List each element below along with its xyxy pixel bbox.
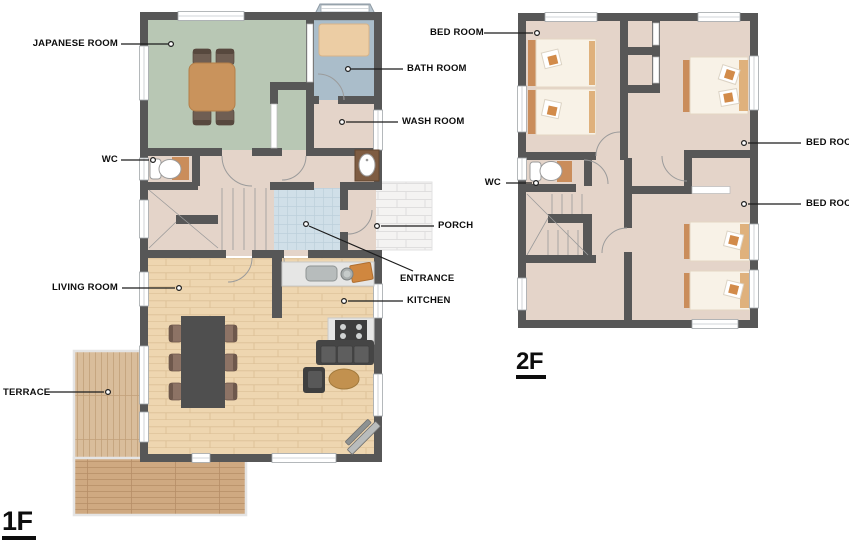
floor-1f-plan — [74, 4, 432, 515]
label-japanese-room: JAPANESE ROOM — [16, 39, 118, 49]
label-kitchen: KITCHEN — [407, 296, 451, 306]
bed-twin-2 — [528, 89, 596, 135]
bed-twin-4 — [684, 271, 750, 310]
label-wc-1f: WC — [80, 155, 118, 165]
entrance-floor — [274, 188, 340, 250]
label-bath-room: BATH ROOM — [407, 64, 467, 74]
label-entrance: ENTRANCE — [400, 274, 454, 284]
label-bed-room-right-upper: BED ROOM — [806, 138, 849, 148]
floor-plan-canvas: JAPANESE ROOM BATH ROOM WASH ROOM WC POR… — [0, 0, 849, 548]
label-bed-room-top-left: BED ROOM — [430, 28, 478, 38]
label-porch: PORCH — [438, 221, 473, 231]
kitchen-counter — [282, 262, 374, 286]
label-wc-2f: WC — [462, 178, 501, 188]
floor-2f-plan — [518, 13, 759, 329]
sofa — [316, 340, 374, 365]
bed-twin-3 — [684, 222, 750, 261]
label-living-room: LIVING ROOM — [16, 283, 118, 293]
label-wash-room: WASH ROOM — [402, 117, 465, 127]
bed-double — [683, 57, 748, 114]
floor-1f-title: 1F — [2, 507, 36, 540]
floor-2f-title: 2F — [516, 349, 546, 379]
label-bed-room-right-lower: BED ROOM — [806, 199, 849, 209]
dining-set — [169, 316, 237, 408]
bed-twin-1 — [528, 39, 596, 87]
toilet-2f — [530, 161, 572, 182]
label-terrace: TERRACE — [3, 388, 50, 398]
coffee-table — [329, 369, 359, 389]
bathtub — [319, 24, 369, 56]
wash-basin — [355, 150, 379, 181]
armchair — [303, 367, 325, 393]
